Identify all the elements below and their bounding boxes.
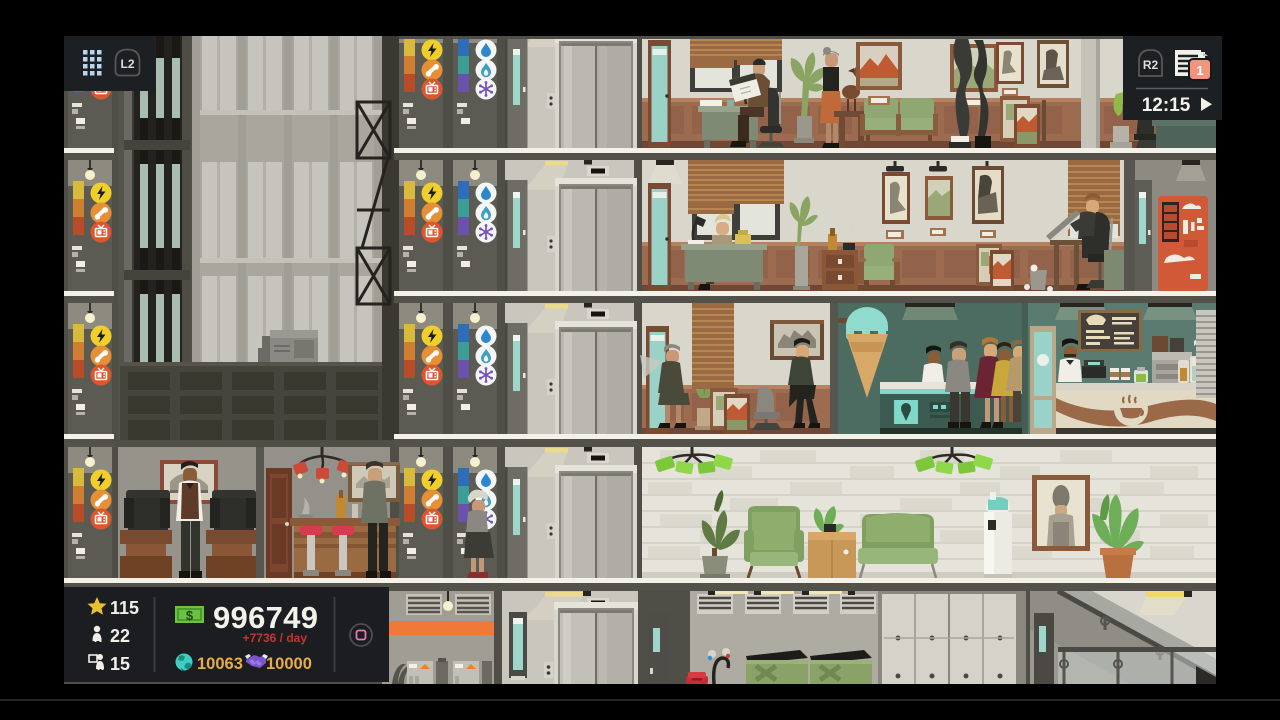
svg-text:1: 1 [1196,63,1203,78]
svg-text:L2: L2 [120,57,134,71]
svg-text:115: 115 [110,598,139,618]
svg-text:10063: 10063 [197,655,243,673]
svg-text:15: 15 [110,654,130,674]
svg-text:R2: R2 [1143,58,1159,72]
svg-text:$: $ [186,608,194,623]
svg-text:996749: 996749 [213,600,318,635]
svg-text:10000: 10000 [266,655,312,673]
svg-text:22: 22 [110,626,130,646]
svg-text:+7736 / day: +7736 / day [243,631,308,645]
svg-text:12:15: 12:15 [1142,95,1191,116]
